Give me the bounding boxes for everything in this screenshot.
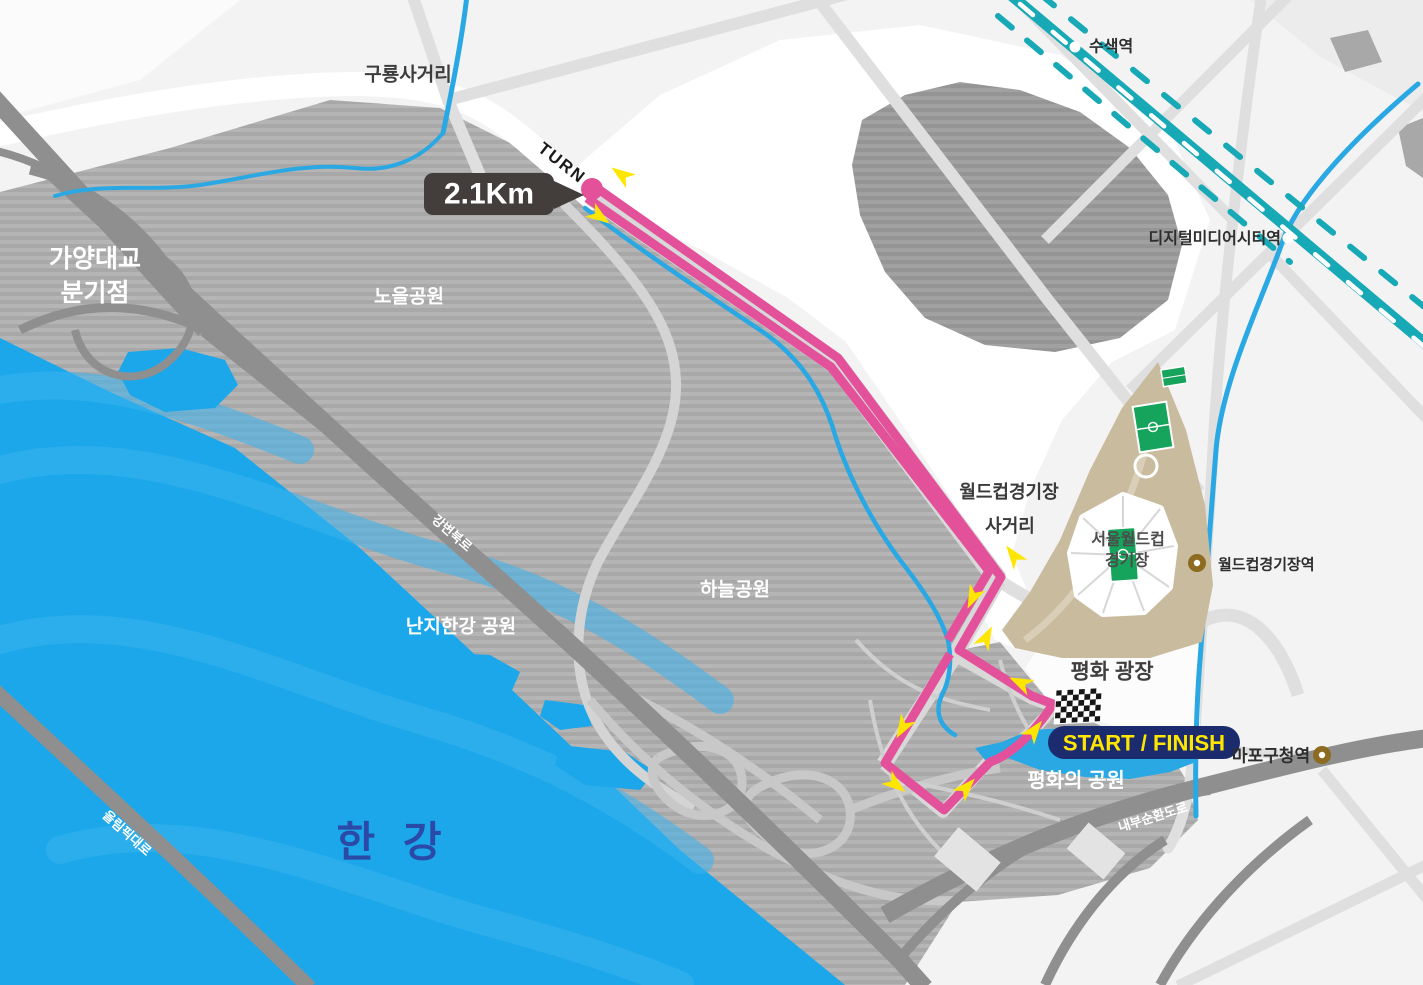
worldcup-intersection-label-line2: 사거리 (985, 516, 1035, 536)
course-map: 2.1Km START / FINISH 구룡사거리 TURN 가양대교 분기점… (0, 0, 1423, 985)
han-river-label: 한 강 (337, 819, 450, 866)
susaek-station-label: 수색역 (1089, 38, 1133, 56)
haneul-park-label: 하늘공원 (700, 579, 770, 601)
start-finish-badge: START / FINISH (1048, 726, 1240, 759)
mapo-office-station-label: 마포구청역 (1232, 746, 1310, 766)
distance-badge-label: 2.1Km (444, 178, 534, 211)
noeul-park-label: 노을공원 (374, 286, 444, 308)
nanji-park-label: 난지한강 공원 (406, 616, 516, 638)
worldcup-intersection-label-line1: 월드컵경기장 (959, 482, 1059, 502)
worldcup-stadium-station-dot-center (1194, 560, 1200, 566)
dmc-station-label: 디지털미디어시티역 (1149, 229, 1281, 248)
gayang-junction-label-line1: 가양대교 (49, 245, 141, 273)
peace-park-label: 평화의 공원 (1027, 769, 1125, 792)
start-finish-label: START / FINISH (1063, 731, 1225, 756)
checkered-flag-icon (1054, 688, 1102, 724)
course-map-canvas: 2.1Km START / FINISH 구룡사거리 TURN 가양대교 분기점… (0, 0, 1423, 985)
guryong-intersection-label: 구룡사거리 (364, 64, 451, 86)
dmc-station-dot (1283, 233, 1294, 244)
susaek-station-dot (1070, 42, 1081, 53)
stadium-label-line2: 경기장 (1105, 552, 1149, 570)
turnaround-point (581, 178, 603, 200)
worldcup-stadium-station-label: 월드컵경기장역 (1218, 556, 1315, 574)
mapo-office-station-dot-center (1319, 752, 1325, 758)
peace-plaza-label: 평화 광장 (1070, 661, 1153, 684)
stadium-label-line1: 서울월드컵 (1091, 530, 1165, 549)
gayang-junction-label-line2: 분기점 (60, 279, 129, 307)
